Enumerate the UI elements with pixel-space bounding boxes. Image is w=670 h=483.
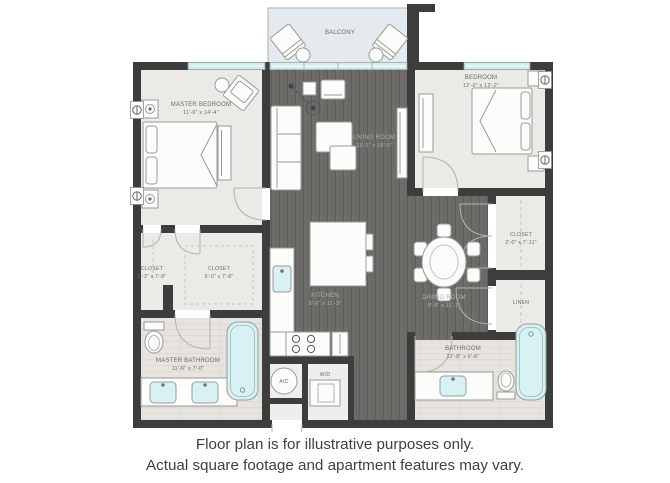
balcony-label: BALCONY bbox=[325, 30, 355, 36]
dining-room-dims: 9'-9" x 11'-1" bbox=[428, 303, 461, 309]
floor-lamp-base bbox=[288, 83, 293, 88]
linen-label: LINEN bbox=[513, 300, 529, 306]
ottoman bbox=[330, 146, 356, 170]
balcony-side-table bbox=[296, 48, 310, 62]
disclaimer-line-1: Floor plan is for illustrative purposes … bbox=[0, 434, 670, 455]
side-table bbox=[303, 82, 316, 95]
balcony-side-table bbox=[369, 48, 383, 62]
closet-b-label: CLOSET bbox=[208, 266, 231, 272]
entry-hall-floor bbox=[354, 356, 407, 420]
closet-a-label: CLOSET bbox=[141, 266, 164, 272]
toilet bbox=[145, 331, 163, 353]
sofa bbox=[271, 106, 301, 190]
pillow bbox=[521, 123, 530, 150]
wall-light-icon bbox=[131, 102, 144, 119]
living-room-label: LIVING ROOM bbox=[353, 135, 395, 141]
pillow bbox=[146, 126, 157, 153]
disclaimer-line-2: Actual square footage and apartment feat… bbox=[0, 455, 670, 476]
disclaimer-caption: Floor plan is for illustrative purposes … bbox=[0, 434, 670, 476]
dresser bbox=[419, 94, 433, 152]
toilet bbox=[498, 371, 514, 391]
living-room-dims: 13'-1" x 18'-9" bbox=[356, 143, 392, 149]
kitchen-dims: 8'-6" x 11'-3" bbox=[309, 301, 342, 307]
bathroom-label: BATHROOM bbox=[445, 346, 481, 352]
bedroom-label: BEDROOM bbox=[465, 75, 497, 81]
wall-light-icon bbox=[131, 188, 144, 205]
pillow bbox=[521, 92, 530, 119]
master-bathroom-dims: 11'-6" x 7'-0" bbox=[172, 366, 205, 372]
pillow bbox=[146, 157, 157, 184]
armchair bbox=[321, 80, 345, 99]
bathtub bbox=[516, 324, 546, 400]
closet-b-dims: 5'-0" x 7'-8" bbox=[205, 274, 234, 280]
stool bbox=[366, 234, 373, 250]
floor-plan: BALCONY MASTER BEDROOM 11'-6" x 14'-4" B… bbox=[0, 0, 670, 432]
master-bedroom-dims: 11'-6" x 14'-4" bbox=[183, 110, 219, 116]
kitchen-island bbox=[310, 222, 366, 286]
wall-light-icon bbox=[539, 152, 552, 169]
dining-chair bbox=[467, 268, 480, 282]
dining-room-label: DINING ROOM bbox=[422, 295, 466, 301]
dresser bbox=[218, 126, 231, 180]
bathroom-dims: 12'-8" x 6'-6" bbox=[447, 354, 480, 360]
windows bbox=[188, 63, 530, 70]
dining-chair bbox=[437, 224, 451, 237]
counter bbox=[270, 332, 286, 356]
closet-a-dims: 2'-3" x 7'-8" bbox=[138, 274, 167, 280]
kitchen-label: KITCHEN bbox=[311, 293, 339, 299]
toilet-tank bbox=[144, 322, 164, 330]
entry-door bbox=[272, 424, 302, 432]
toilet-tank bbox=[497, 392, 515, 399]
stool bbox=[366, 256, 373, 272]
closet-c-dims: 2'-0" x 7'-11" bbox=[505, 240, 536, 246]
range-stove bbox=[286, 332, 330, 356]
ac-label: A/C bbox=[279, 379, 288, 385]
vestibule-floor bbox=[270, 404, 302, 420]
closet-c-label: CLOSET bbox=[510, 232, 533, 238]
floor-plan-page: BALCONY MASTER BEDROOM 11'-6" x 14'-4" B… bbox=[0, 0, 670, 483]
tv-console bbox=[397, 108, 407, 178]
wall-light-icon bbox=[539, 72, 552, 89]
master-bathroom-label: MASTER BATHROOM bbox=[156, 358, 220, 364]
dining-chair bbox=[467, 242, 480, 256]
master-bedroom-label: MASTER BEDROOM bbox=[171, 102, 231, 108]
wd-label: W/D bbox=[320, 372, 331, 378]
bedroom-dims: 12'-0" x 12'-2" bbox=[463, 83, 499, 89]
